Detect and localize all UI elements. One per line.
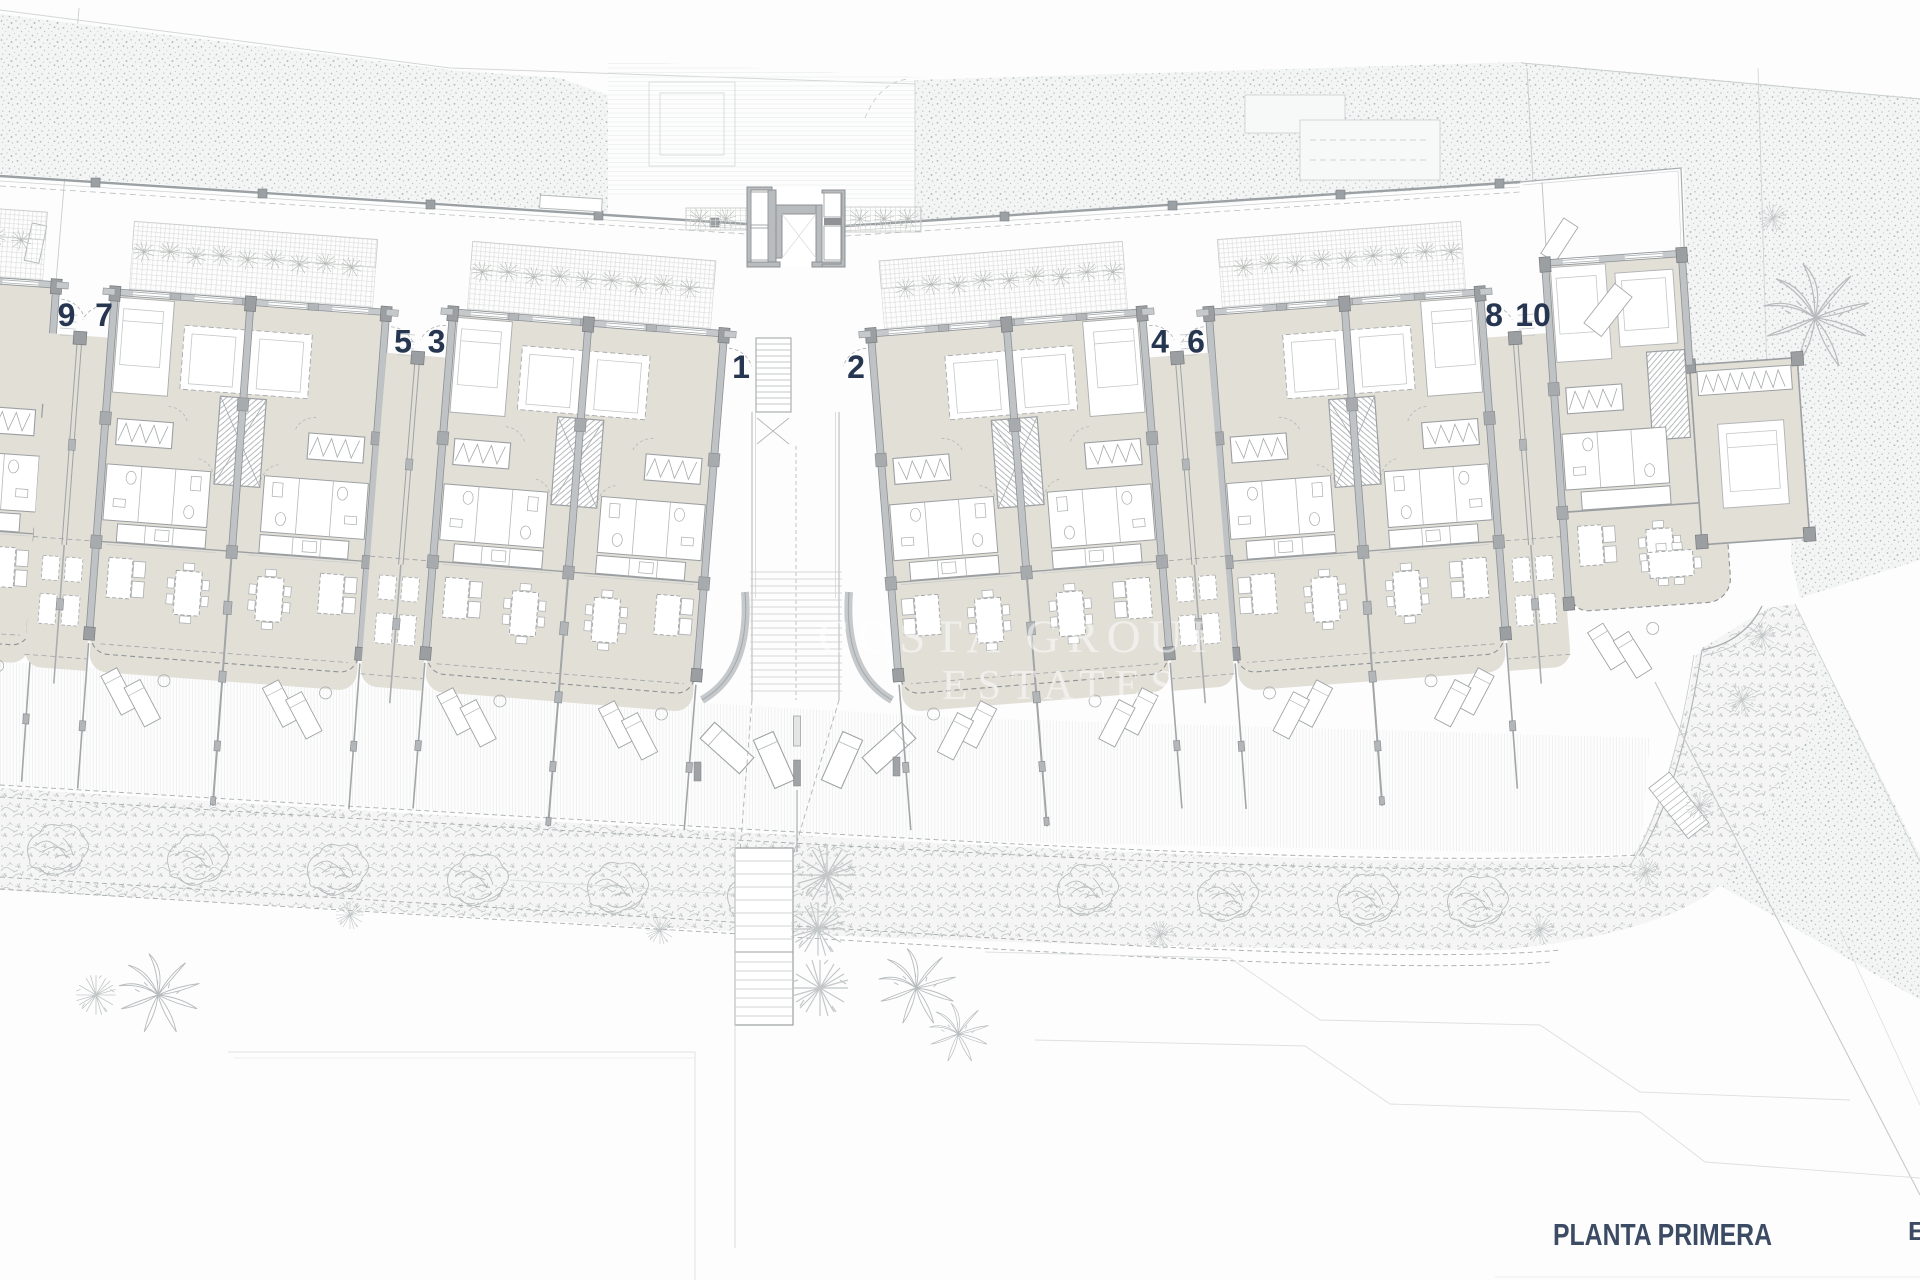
svg-text:4: 4 — [1151, 324, 1169, 360]
svg-text:9: 9 — [58, 297, 76, 333]
svg-text:6: 6 — [1187, 324, 1205, 360]
svg-text:3: 3 — [428, 324, 446, 360]
svg-text:PLANTA PRIMERA: PLANTA PRIMERA — [1553, 1218, 1772, 1252]
svg-text:5: 5 — [394, 324, 412, 360]
svg-text:COSTA GROUP: COSTA GROUP — [818, 611, 1225, 663]
svg-text:ESTATES: ESTATES — [942, 663, 1184, 709]
svg-text:7: 7 — [95, 297, 113, 333]
svg-text:2: 2 — [847, 349, 865, 385]
svg-text:8: 8 — [1485, 297, 1503, 333]
svg-text:10: 10 — [1515, 297, 1551, 333]
svg-text:1: 1 — [732, 349, 750, 385]
svg-text:E: E — [1908, 1216, 1920, 1246]
